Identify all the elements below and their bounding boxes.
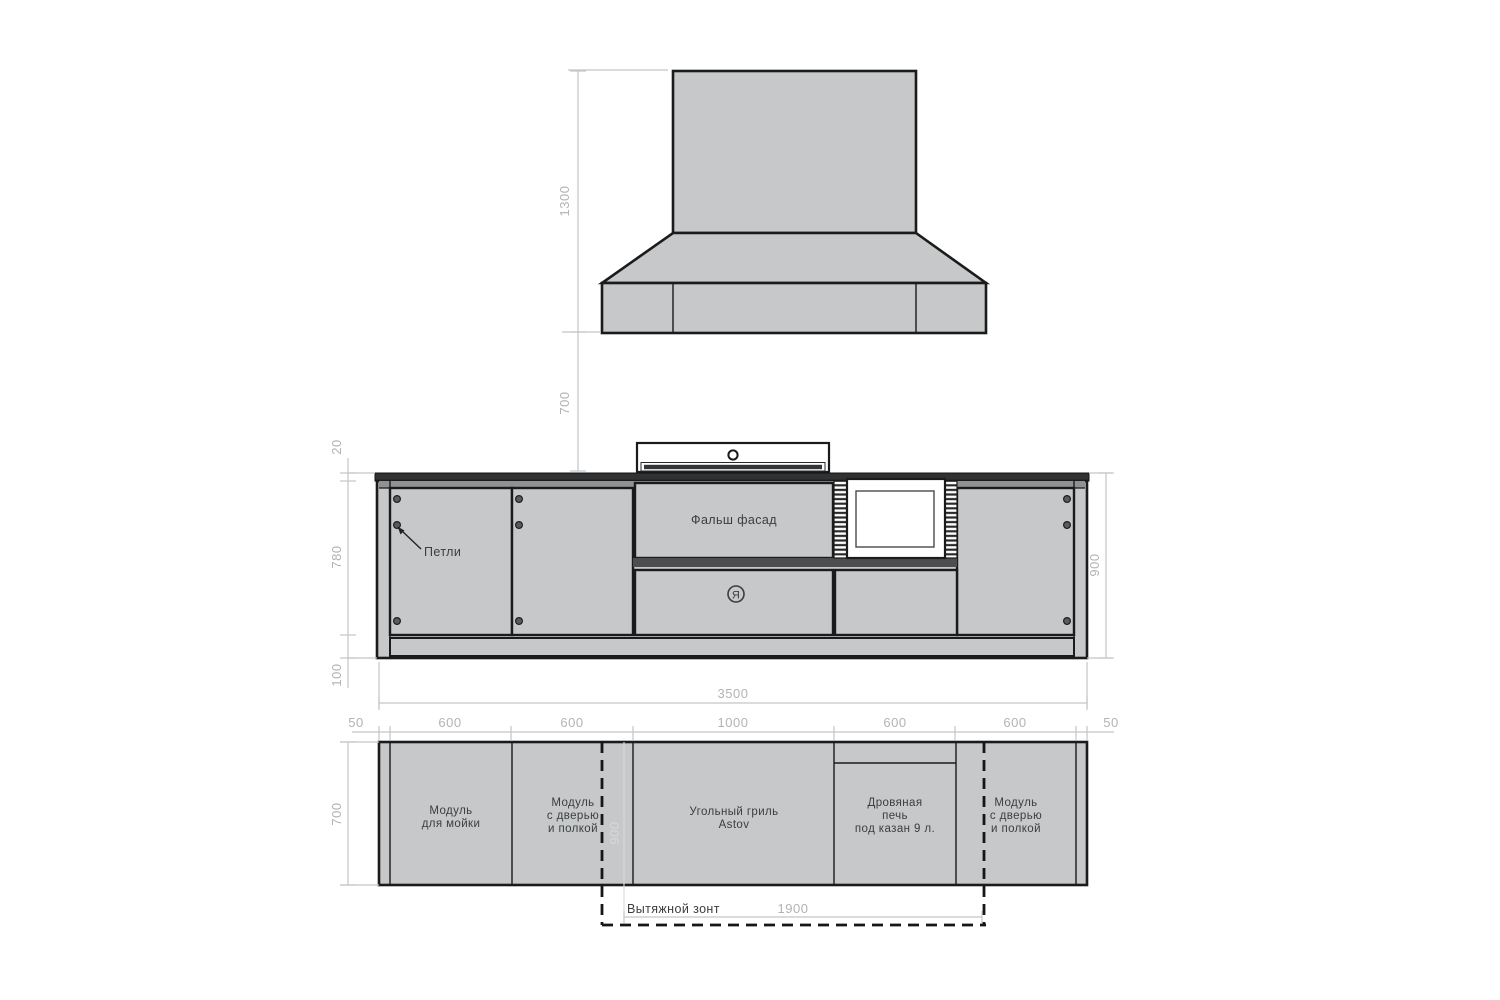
dim-label-20: 20: [329, 439, 344, 454]
module-3-line-1: Угольный гриль: [689, 806, 778, 818]
grill-lid-thermometer: [728, 450, 737, 459]
module-5-line-1: Модуль: [994, 797, 1037, 809]
hinge-dot: [516, 522, 523, 529]
module-4-line-3: под казан 9 л.: [855, 823, 935, 835]
dim-hood-clearance: 700: [557, 332, 586, 471]
dim-label-100: 100: [329, 663, 344, 686]
dim-total-width: 3500: [379, 662, 1087, 710]
door-sink-module: [390, 488, 512, 635]
oven-module: [834, 479, 957, 635]
module-2-line-2: с дверью: [547, 810, 599, 822]
oven-vent-grille-left: [834, 481, 847, 558]
door-right-module: [957, 488, 1074, 635]
hinge-dot: [516, 618, 523, 625]
dim-label-780: 780: [329, 545, 344, 568]
module-1-line-1: Модуль: [429, 805, 472, 817]
hinge-dot: [1064, 522, 1071, 529]
dim-left-chain: 20 780 100: [329, 439, 377, 688]
hinges-label: Петли: [424, 545, 461, 559]
dim-label-600-1: 600: [438, 715, 461, 730]
dim-plan-depth: 700: [329, 742, 379, 885]
false-facade-label: Фальш фасад: [691, 513, 777, 527]
hood-footprint-label: Вытяжной зонт: [627, 902, 720, 916]
dim-label-50-left: 50: [348, 715, 363, 730]
dim-label-50-right: 50: [1103, 715, 1118, 730]
dim-hood-width: 1900 Вытяжной зонт: [624, 901, 982, 923]
technical-drawing-page: 1300 700: [0, 0, 1500, 1000]
hinge-dot: [394, 496, 401, 503]
door-shelf-module: [512, 488, 633, 635]
grill-vent-slot: [644, 465, 822, 469]
oven-door-window: [856, 491, 934, 547]
dim-label-600-3: 600: [883, 715, 906, 730]
module-1-line-2: для мойки: [422, 818, 481, 830]
module-4-line-2: печь: [882, 810, 908, 822]
module-5-line-3: и полкой: [991, 823, 1041, 835]
kitchen-drawing-canvas: 1300 700: [0, 0, 1500, 1000]
hood-front-view: [602, 71, 986, 333]
hood-bottom-band: [602, 283, 986, 333]
kitchen-elevation: Петли Фальш фасад Я: [375, 473, 1089, 658]
module-2-line-3: и полкой: [548, 823, 598, 835]
hood-canopy-slope: [602, 233, 986, 283]
dim-label-600-2: 600: [560, 715, 583, 730]
grill-lid: [637, 443, 829, 472]
dim-label-600-4: 600: [1003, 715, 1026, 730]
module-5-line-2: с дверью: [990, 810, 1042, 822]
dim-label-700: 700: [557, 391, 572, 414]
hinge-dot: [1064, 618, 1071, 625]
dim-label-1900: 1900: [778, 901, 809, 916]
hinge-dot: [1064, 496, 1071, 503]
recess-dark-strip: [633, 558, 957, 567]
dim-label-1000: 1000: [718, 715, 749, 730]
dim-label-900-faint: 900: [607, 821, 622, 844]
oven-vent-grille-right: [945, 481, 957, 558]
dim-label-700-plan: 700: [329, 802, 344, 825]
module-4-line-1: Дровяная: [868, 797, 923, 809]
oven-lower-panel: [835, 570, 957, 635]
module-2-line-1: Модуль: [551, 797, 594, 809]
hinge-dot: [394, 618, 401, 625]
hinge-dot: [516, 496, 523, 503]
dim-label-900: 900: [1087, 553, 1102, 576]
plinth: [390, 638, 1074, 656]
dim-label-3500: 3500: [718, 686, 749, 701]
hinge-dot: [394, 522, 401, 529]
kitchen-plan-view: Модуль для мойки Модуль с дверью и полко…: [379, 742, 1087, 925]
dim-plan-segments: 50 600 600 1000 600 600 50: [348, 715, 1118, 740]
dim-label-1300: 1300: [557, 186, 572, 217]
hood-chimney: [673, 71, 916, 233]
module-3-line-2: Astov: [719, 819, 750, 831]
brand-logo-letter: Я: [732, 590, 740, 602]
dim-total-height: 900: [1087, 473, 1114, 658]
